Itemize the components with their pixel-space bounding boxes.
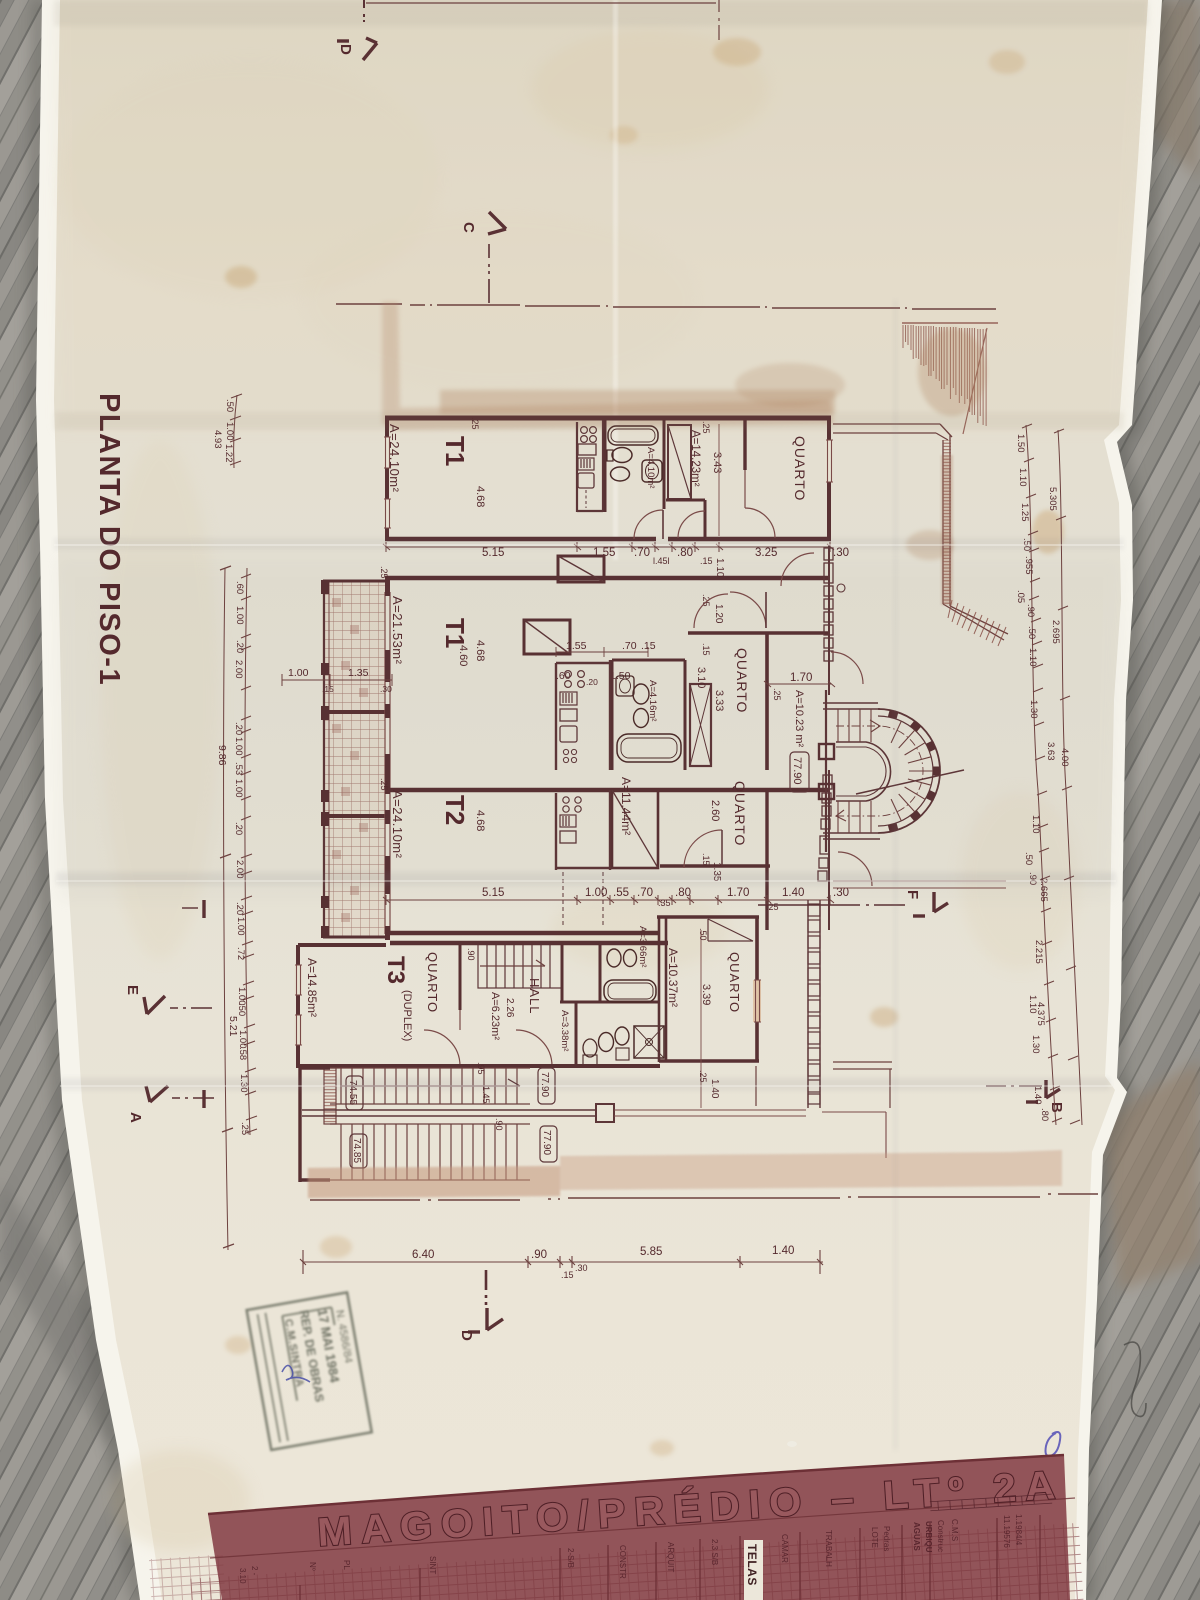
svg-text:4.60: 4.60 xyxy=(457,645,469,666)
svg-text:.80: .80 xyxy=(675,887,691,899)
svg-text:.72: .72 xyxy=(235,947,246,960)
svg-text:.90: .90 xyxy=(466,948,476,961)
svg-text:5.305: 5.305 xyxy=(1047,487,1058,511)
svg-text:77.90: 77.90 xyxy=(791,757,803,785)
svg-text:.15: .15 xyxy=(322,684,334,694)
svg-text:T2: T2 xyxy=(440,795,470,825)
svg-text:F: F xyxy=(904,890,921,899)
svg-text:.955: .955 xyxy=(1023,556,1034,575)
svg-text:T1: T1 xyxy=(440,436,470,466)
svg-text:.50: .50 xyxy=(1026,626,1037,639)
svg-text:CAMAR: CAMAR xyxy=(780,1534,789,1563)
svg-text:1.30: 1.30 xyxy=(1030,1035,1041,1054)
svg-text:2 -: 2 - xyxy=(250,1566,259,1576)
svg-text:.50: .50 xyxy=(224,399,235,412)
svg-text:1.00: 1.00 xyxy=(233,779,244,798)
svg-text:QUARTO: QUARTO xyxy=(732,781,748,846)
svg-text:.15: .15 xyxy=(561,1270,574,1280)
svg-text:.55: .55 xyxy=(613,887,629,899)
svg-text:2.00: 2.00 xyxy=(233,660,244,679)
svg-text:PL: PL xyxy=(342,1560,351,1570)
svg-text:.95: .95 xyxy=(476,1062,486,1075)
svg-text:4.93: 4.93 xyxy=(212,430,223,449)
svg-text:2.60: 2.60 xyxy=(709,800,721,821)
svg-text:1.10: 1.10 xyxy=(1030,815,1041,834)
svg-text:.25: .25 xyxy=(772,688,782,701)
svg-text:QUARTO: QUARTO xyxy=(792,436,808,501)
svg-text:1.20: 1.20 xyxy=(713,604,724,624)
svg-text:1.00: 1.00 xyxy=(233,737,244,756)
svg-text:D: D xyxy=(337,44,354,55)
svg-text:E: E xyxy=(124,985,141,995)
svg-text:1.10: 1.10 xyxy=(1027,648,1038,667)
svg-text:.20: .20 xyxy=(586,677,598,687)
svg-text:AGUAS: AGUAS xyxy=(912,1522,921,1552)
svg-text:A: A xyxy=(127,1112,144,1123)
svg-text:1.50: 1.50 xyxy=(1015,434,1026,453)
svg-text:1.00: 1.00 xyxy=(288,667,309,679)
svg-text:1.40: 1.40 xyxy=(772,1245,794,1257)
svg-text:QUARTO: QUARTO xyxy=(734,648,750,713)
svg-text:4.375: 4.375 xyxy=(1035,1002,1046,1026)
svg-text:ARQUIT: ARQUIT xyxy=(666,1542,675,1572)
svg-text:3.43: 3.43 xyxy=(711,452,723,473)
svg-text:3.63: 3.63 xyxy=(1045,742,1056,761)
svg-text:5.85: 5.85 xyxy=(640,1246,662,1258)
svg-text:1.55: 1.55 xyxy=(566,640,587,652)
svg-text:(DUPLEX): (DUPLEX) xyxy=(401,990,413,1041)
svg-text:.20: .20 xyxy=(234,902,245,915)
svg-text:SINT: SINT xyxy=(428,1556,437,1574)
svg-text:1.30: 1.30 xyxy=(1028,700,1039,719)
svg-text:1.10: 1.10 xyxy=(714,558,725,578)
svg-text:LOTE: LOTE xyxy=(870,1527,879,1548)
svg-text:.30: .30 xyxy=(575,1263,588,1273)
svg-text:.90: .90 xyxy=(531,1249,547,1261)
svg-text:C: C xyxy=(460,222,477,233)
svg-text:.50: .50 xyxy=(698,928,708,941)
svg-text:11.19576: 11.19576 xyxy=(1002,1515,1011,1548)
svg-text:Nº: Nº xyxy=(308,1562,317,1571)
svg-text:A=10.23 m²: A=10.23 m² xyxy=(793,690,805,748)
svg-text:.35: .35 xyxy=(658,898,671,908)
svg-text:.90: .90 xyxy=(494,1118,504,1131)
svg-text:A=6.23m²: A=6.23m² xyxy=(489,992,501,1040)
svg-text:A=11.44m²: A=11.44m² xyxy=(619,777,633,835)
svg-text:1.00: 1.00 xyxy=(235,917,246,936)
svg-text:6.40: 6.40 xyxy=(412,1249,434,1261)
svg-text:.15: .15 xyxy=(701,643,711,656)
svg-text:1.1984/4: 1.1984/4 xyxy=(1014,1514,1023,1546)
svg-text:.30: .30 xyxy=(380,684,392,694)
svg-text:1.25: 1.25 xyxy=(1019,503,1030,522)
svg-text:1.00: 1.00 xyxy=(585,887,607,899)
svg-text:D: D xyxy=(458,1330,475,1341)
svg-text:A=10.37m²: A=10.37m² xyxy=(666,948,680,1007)
svg-text:.20: .20 xyxy=(234,640,245,653)
svg-text:.50: .50 xyxy=(236,1003,247,1016)
svg-text:3.39: 3.39 xyxy=(700,984,712,1005)
svg-text:.20: .20 xyxy=(233,822,244,835)
svg-text:1.70: 1.70 xyxy=(727,887,749,899)
svg-text:QUARTO: QUARTO xyxy=(425,952,440,1013)
svg-text:Construc: Construc xyxy=(936,1520,945,1552)
svg-text:Pedras: Pedras xyxy=(882,1526,891,1551)
svg-text:2.215: 2.215 xyxy=(1033,940,1044,964)
svg-text:A=3.38m²: A=3.38m² xyxy=(559,1010,570,1051)
svg-text:A=21.53m²: A=21.53m² xyxy=(390,596,405,665)
svg-text:.05: .05 xyxy=(1015,590,1026,603)
svg-text:A=3.66m²: A=3.66m² xyxy=(637,926,648,967)
svg-text:.15: .15 xyxy=(701,853,711,866)
svg-text:.25: .25 xyxy=(379,778,389,791)
svg-text:2.695: 2.695 xyxy=(1050,620,1061,644)
svg-text:T1: T1 xyxy=(440,618,470,648)
svg-text:4.68: 4.68 xyxy=(474,486,486,507)
svg-text:9.86: 9.86 xyxy=(216,745,228,766)
svg-text:.58: .58 xyxy=(237,1047,248,1060)
svg-text:A=14.85m²: A=14.85m² xyxy=(305,958,319,1017)
svg-text:74.85: 74.85 xyxy=(351,1138,362,1163)
svg-text:A=24.10m²: A=24.10m² xyxy=(390,790,405,859)
svg-text:T3: T3 xyxy=(382,956,409,984)
svg-text:.20: .20 xyxy=(233,722,244,735)
svg-text:1.70: 1.70 xyxy=(790,672,812,684)
svg-text:.53: .53 xyxy=(233,762,244,775)
svg-text:.70: .70 xyxy=(637,887,653,899)
svg-text:1.40: 1.40 xyxy=(782,887,804,899)
svg-text:.25: .25 xyxy=(766,902,779,912)
svg-text:A=4.16m²: A=4.16m² xyxy=(647,680,658,721)
svg-text:l.45l: l.45l xyxy=(653,556,670,566)
svg-text:1.10: 1.10 xyxy=(1017,468,1028,487)
svg-text:TRABALH: TRABALH xyxy=(824,1530,833,1567)
svg-text:1.35: 1.35 xyxy=(348,667,369,679)
svg-text:1.00: 1.00 xyxy=(234,606,245,625)
svg-text:C.M.S: C.M.S xyxy=(950,1519,959,1541)
svg-text:HALL: HALL xyxy=(527,978,542,1015)
svg-text:TELAS: TELAS xyxy=(745,1544,759,1586)
svg-text:A=14.23m²: A=14.23m² xyxy=(689,430,701,487)
svg-text:3.10: 3.10 xyxy=(238,1568,247,1584)
svg-text:2-S/B: 2-S/B xyxy=(566,1548,575,1568)
svg-text:4.00: 4.00 xyxy=(1059,748,1070,767)
svg-text:A=4.10m²: A=4.10m² xyxy=(645,447,656,488)
svg-text:CONSTR: CONSTR xyxy=(618,1545,627,1579)
svg-text:URBIQU: URBIQU xyxy=(924,1521,933,1553)
svg-text:1.00: 1.00 xyxy=(237,1030,248,1049)
svg-text:77.90: 77.90 xyxy=(541,1130,552,1155)
svg-text:5.15: 5.15 xyxy=(482,887,504,899)
svg-text:.80: .80 xyxy=(1039,1108,1050,1121)
svg-text:.25: .25 xyxy=(379,566,389,579)
svg-text:3.33: 3.33 xyxy=(713,690,725,711)
svg-text:4.68: 4.68 xyxy=(474,640,486,661)
svg-text:.15: .15 xyxy=(700,556,713,566)
svg-text:4.68: 4.68 xyxy=(474,810,486,831)
svg-text:1.22: 1.22 xyxy=(223,444,234,463)
svg-text:.50: .50 xyxy=(1023,852,1034,865)
svg-text:3.10: 3.10 xyxy=(695,667,707,688)
svg-text:.70: .70 xyxy=(622,640,637,652)
svg-text:.30: .30 xyxy=(833,887,849,899)
svg-text:QUARTO: QUARTO xyxy=(727,952,742,1013)
svg-text:2.26: 2.26 xyxy=(504,998,515,1018)
svg-text:.25: .25 xyxy=(239,1122,250,1135)
svg-text:A=24.10m²: A=24.10m² xyxy=(387,424,402,493)
svg-text:.90: .90 xyxy=(1025,604,1036,617)
svg-text:.60: .60 xyxy=(234,581,245,594)
svg-text:2.3 S/B: 2.3 S/B xyxy=(710,1539,719,1565)
